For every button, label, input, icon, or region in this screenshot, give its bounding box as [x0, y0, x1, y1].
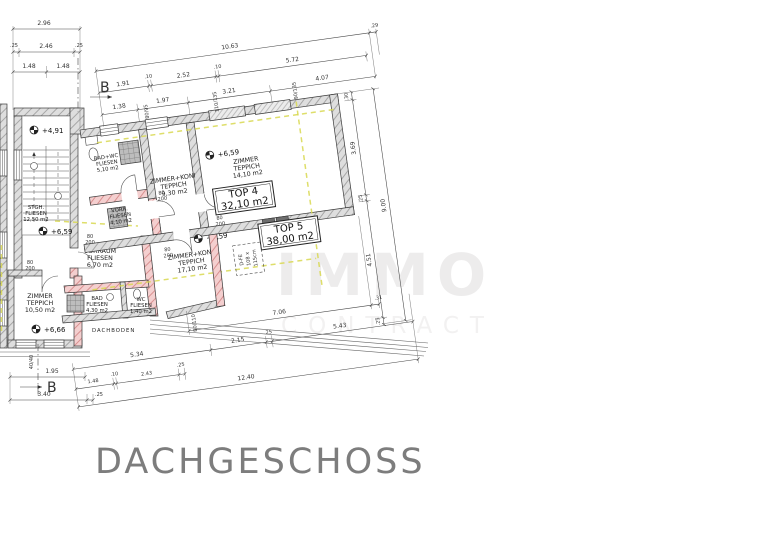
dim-label: .25: [264, 329, 273, 336]
level-marker-icon: [30, 126, 38, 134]
level-659-stair: +6,59: [51, 228, 72, 236]
room-area: 4,30 m2: [86, 308, 108, 314]
room-area: 6,70 m2: [87, 262, 113, 269]
roof-window-note: D-FE 108 x 115cm: [233, 242, 265, 276]
level-marker-icon: [39, 227, 47, 235]
window-size-label: 80/110: [191, 314, 199, 332]
dim-label: .25: [176, 362, 185, 369]
room-label-vorr: VORR. FLIESEN 4,10 m2: [108, 206, 132, 227]
section-letter: B: [100, 80, 110, 96]
badwc-vorr-wall: [89, 189, 148, 205]
room-label-z1410: ZIMMER TEPPICH 14,10 m2: [230, 155, 263, 180]
zk1710-right-wall: [207, 234, 227, 307]
level-marker-icon: [32, 325, 40, 333]
dim-label: 5.34: [130, 350, 144, 359]
window-size-label: 110/135: [212, 91, 221, 112]
dim-label: 9.00: [380, 198, 389, 212]
dim-label: .10: [110, 371, 119, 378]
sink: [107, 294, 114, 301]
dim-label: 1.91: [116, 80, 130, 89]
dim-label: 40/40: [29, 355, 35, 369]
watermark: IMMO CONTRACT: [276, 241, 495, 339]
dim-label: 1.48: [56, 63, 70, 70]
dim-label: .25: [75, 43, 83, 49]
dim-label: 1.97: [156, 96, 170, 105]
room-label-badwc: BAD+WC FLIESEN 5,10 m2: [93, 153, 120, 174]
dim-label: 1.95: [45, 368, 59, 375]
shower: [67, 295, 84, 312]
level-marker-icon: [205, 151, 214, 160]
dim-label: 3.21: [222, 87, 236, 96]
shower: [118, 140, 141, 165]
main-wing: 80 200 80 200 80 200 BAD+WC FLIESEN 5,10…: [31, 22, 425, 410]
window-size-label: 90/135: [291, 81, 299, 99]
room-area: 10,50 m2: [25, 307, 55, 314]
section-marker-top: B: [78, 58, 112, 112]
dim-label: 1.38: [112, 102, 126, 111]
level-491: +4,91: [42, 127, 63, 135]
dim-label: 4.07: [315, 74, 329, 83]
level-666: +6,66: [44, 326, 66, 334]
room-name: ZIMMER: [27, 293, 53, 300]
room-label-z1050: ZIMMER TEPPICH 10,50 m2: [25, 293, 55, 314]
watermark-line2: CONTRACT: [281, 313, 495, 339]
lower-left-zone: ZIMMER TEPPICH 10,50 m2 +6,66 VORRAUM FL…: [8, 234, 158, 348]
stairwell-left-wall: [14, 116, 22, 278]
dim-label: 2.43: [141, 370, 153, 377]
dim-label: .10: [213, 64, 222, 71]
dim-label: 1.48: [22, 63, 36, 70]
room-label-dachboden: DACHBODEN: [92, 328, 135, 334]
room-area: 1,40 m2: [130, 309, 152, 315]
dim-label: 12.40: [237, 373, 255, 382]
dim-label: .10: [144, 73, 153, 80]
dim-label: .30: [343, 92, 350, 101]
dim-label: 2.46: [39, 43, 53, 50]
dim-label: .25: [10, 43, 18, 49]
z1050-left-wall: [8, 276, 14, 346]
dim-label: 5.72: [285, 56, 299, 65]
dim-label: .25: [95, 392, 103, 398]
room-label-bad: BAD FLIESEN 4,30 m2: [86, 296, 108, 314]
dim-label: 3.69: [349, 141, 358, 155]
stair-number-circle: [55, 193, 62, 200]
section-letter: B: [47, 380, 57, 396]
room-area: 12,50 m2: [23, 217, 48, 223]
room-label-zk1710: ZIMMER+KONI TEPPICH 17,10 m2: [167, 249, 216, 276]
dim-label: 10.63: [221, 42, 239, 51]
floor-plan-page: IMMO CONTRACT +4,91 STGH. FLIESEN 12,50 …: [0, 0, 770, 545]
page-title: DACHGESCHOSS: [95, 442, 426, 482]
dim-label: .29: [370, 22, 379, 29]
dim-label: 2.52: [176, 71, 190, 80]
roof-window-size2: 115cm: [251, 249, 259, 267]
sink: [85, 136, 98, 146]
window-size-label: 80/95: [143, 104, 151, 119]
room-finish: FLIESEN: [87, 255, 113, 262]
room-label-zk930: ZIMMER+KONI TEPPICH 9,30 m2: [149, 172, 198, 199]
door-size-label: 200: [25, 266, 35, 272]
watermark-line1: IMMO: [276, 241, 494, 309]
top4-box: TOP 4 32,10 m2: [213, 181, 276, 215]
level-659-z1410: +6,59: [217, 148, 239, 159]
dim-label: 2.96: [37, 20, 51, 27]
door-z1050: [42, 276, 58, 292]
dim-label: 1.48: [87, 378, 99, 385]
room-finish: TEPPICH: [26, 300, 54, 307]
stair-number-circle: [31, 163, 38, 170]
floor-plan-drawing: IMMO CONTRACT +4,91 STGH. FLIESEN 12,50 …: [0, 0, 770, 545]
